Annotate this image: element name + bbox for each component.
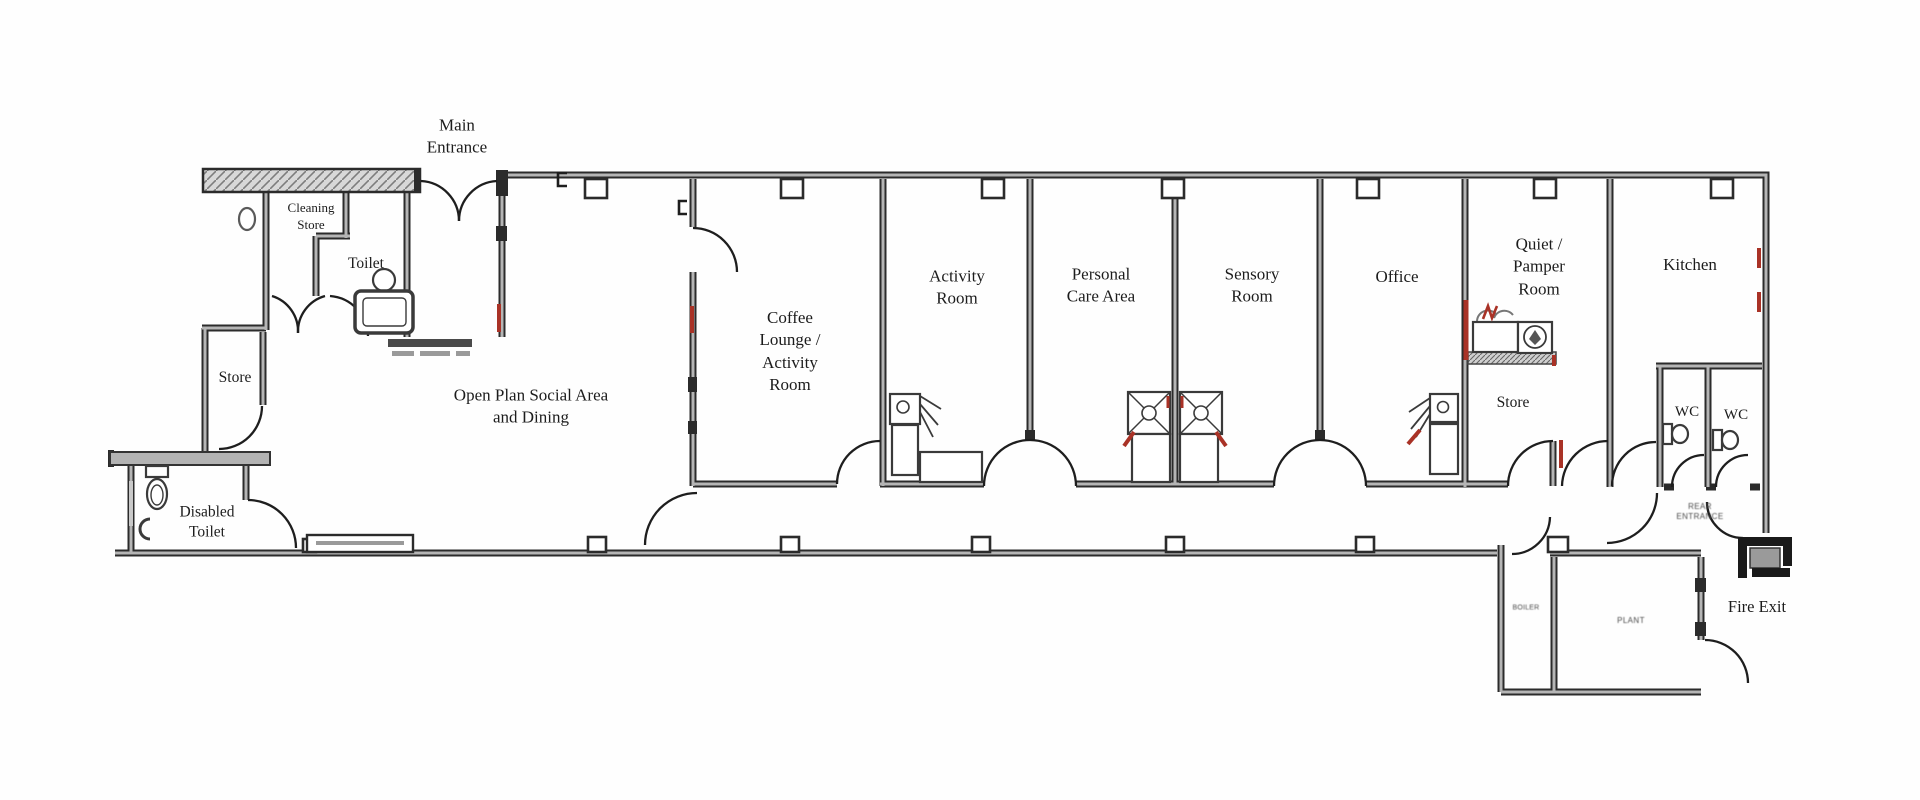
label-plant: PLANT — [1617, 616, 1645, 626]
label-wc-2: WC — [1724, 406, 1748, 426]
label-disabled-toilet: Disabled Toilet — [179, 503, 234, 544]
door-stop-icon — [679, 201, 687, 214]
label-open-plan: Open Plan Social Area and Dining — [454, 385, 608, 430]
rear-vestibule-door-arc — [1607, 493, 1657, 543]
hatched-wall — [203, 169, 421, 192]
label-wc-1: WC — [1675, 403, 1699, 423]
fire-exit-door-arc — [1705, 640, 1748, 683]
label-store-right: Store — [1497, 393, 1530, 413]
office-door-arc — [1320, 440, 1366, 486]
disabled-toilet-icon — [140, 466, 168, 539]
sensory-room-door-arc — [1274, 440, 1320, 486]
corridor-entry-door-arc — [645, 493, 697, 545]
label-activity-room: Activity Room — [929, 266, 985, 311]
radiator-icon — [388, 339, 472, 356]
label-sensory-room: Sensory Room — [1225, 264, 1280, 309]
label-cleaning-store: Cleaning Store — [288, 199, 335, 233]
wall-brackets — [558, 173, 687, 214]
label-office: Office — [1375, 266, 1418, 288]
boiler-door-arc — [1512, 517, 1550, 554]
label-kitchen: Kitchen — [1663, 254, 1717, 276]
label-store-left: Store — [219, 368, 252, 388]
window-bay — [307, 535, 413, 552]
wc2-door-arc — [1716, 455, 1748, 487]
main-entrance-door-arc — [421, 181, 459, 221]
label-coffee-lounge: Coffee Lounge / Activity Room — [760, 307, 821, 397]
wc-toilet-icon — [1713, 430, 1738, 450]
floor-plan-page: Main Entrance Cleaning Store Toilet Stor… — [0, 0, 1920, 800]
floor-plan-drawing — [0, 0, 1920, 800]
red-mark — [1408, 430, 1420, 444]
label-fire-exit: Fire Exit — [1728, 596, 1786, 618]
pamper-basin-icon — [1518, 322, 1552, 353]
coffee-lounge-corridor-door-arc — [837, 441, 880, 484]
store-left-door-arc — [219, 406, 262, 449]
wc1-door-arc — [1672, 455, 1704, 487]
label-toilet: Toilet — [348, 254, 384, 274]
quiet-room-door-arc — [1562, 441, 1608, 486]
label-boiler: BOILER — [1513, 605, 1540, 614]
coffee-lounge-door-arc — [693, 228, 737, 272]
label-quiet-pamper: Quiet / Pamper Room — [1513, 233, 1565, 300]
disabled-toilet-door-arc — [248, 500, 296, 548]
wc-toilet-icon — [1663, 424, 1688, 444]
cleaning-sink-icon — [239, 208, 255, 230]
lobby-door-arc — [272, 296, 298, 333]
activity-sink-icon — [890, 394, 982, 482]
personal-care-door-arc — [1030, 440, 1076, 486]
lobby-door-arc — [298, 296, 325, 333]
pamper-bed-icon — [1473, 311, 1518, 352]
kitchen-door-arc — [1612, 442, 1656, 486]
label-personal-care: Personal Care Area — [1067, 264, 1135, 309]
label-main-entrance: Main Entrance — [427, 115, 487, 160]
counter — [110, 452, 270, 465]
store-right-door-arc — [1508, 441, 1553, 486]
fire-exit-door-structure — [1738, 537, 1792, 578]
main-entrance-door-arc — [459, 181, 497, 221]
label-rear-entrance: REAR ENTRANCE — [1676, 502, 1723, 522]
activity-room-door-arc — [984, 440, 1030, 486]
